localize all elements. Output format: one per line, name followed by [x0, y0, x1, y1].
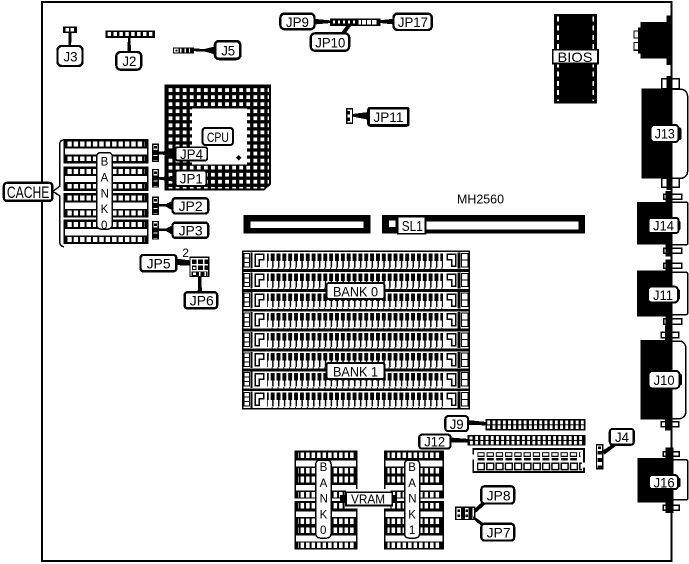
svg-text:B: B [320, 462, 328, 474]
svg-text:JP3: JP3 [179, 223, 203, 239]
svg-text:J2: J2 [122, 53, 136, 69]
svg-text:BANK 0: BANK 0 [333, 284, 378, 299]
svg-text:0: 0 [101, 220, 107, 232]
svg-text:J12: J12 [424, 435, 445, 450]
svg-text:0: 0 [320, 525, 326, 537]
svg-text:JP11: JP11 [373, 109, 403, 125]
svg-text:JP7: JP7 [487, 525, 511, 541]
svg-text:2: 2 [182, 246, 189, 260]
svg-text:JP2: JP2 [179, 198, 203, 214]
svg-text:J13: J13 [655, 126, 675, 142]
svg-text:J16: J16 [654, 475, 675, 490]
svg-text:VRAM: VRAM [351, 492, 385, 506]
svg-text:JP8: JP8 [487, 487, 511, 503]
svg-text:A: A [101, 172, 109, 184]
svg-text:J5: J5 [221, 42, 235, 58]
svg-text:J3: J3 [64, 49, 78, 65]
svg-text:J4: J4 [615, 429, 629, 445]
svg-text:SL1: SL1 [402, 218, 423, 235]
svg-text:CACHE: CACHE [7, 184, 50, 202]
svg-text:MH2560: MH2560 [457, 193, 504, 207]
svg-text:JP1: JP1 [180, 171, 203, 187]
svg-text:J10: J10 [654, 372, 675, 388]
svg-text:N: N [320, 494, 328, 506]
svg-text:JP5: JP5 [147, 256, 171, 272]
svg-text:J9: J9 [450, 416, 464, 432]
svg-text:BIOS: BIOS [558, 49, 593, 65]
svg-text:JP17: JP17 [398, 14, 428, 30]
svg-text:J14: J14 [653, 218, 674, 234]
svg-text:1: 1 [409, 525, 415, 537]
svg-text:A: A [320, 478, 328, 490]
svg-text:A: A [408, 478, 416, 490]
svg-text:K: K [101, 204, 109, 216]
svg-text:BANK 1: BANK 1 [333, 364, 378, 379]
svg-text:CPU: CPU [207, 129, 229, 145]
svg-text:N: N [408, 494, 416, 506]
svg-text:JP9: JP9 [286, 14, 309, 30]
svg-text:JP4: JP4 [180, 146, 203, 162]
svg-text:JP10: JP10 [315, 34, 345, 50]
svg-text:K: K [408, 509, 416, 521]
svg-text:B: B [101, 157, 109, 169]
svg-text:K: K [320, 509, 328, 521]
svg-text:JP6: JP6 [190, 293, 214, 309]
svg-text:B: B [408, 462, 416, 474]
svg-text:J11: J11 [653, 287, 673, 303]
svg-text:N: N [101, 188, 109, 200]
